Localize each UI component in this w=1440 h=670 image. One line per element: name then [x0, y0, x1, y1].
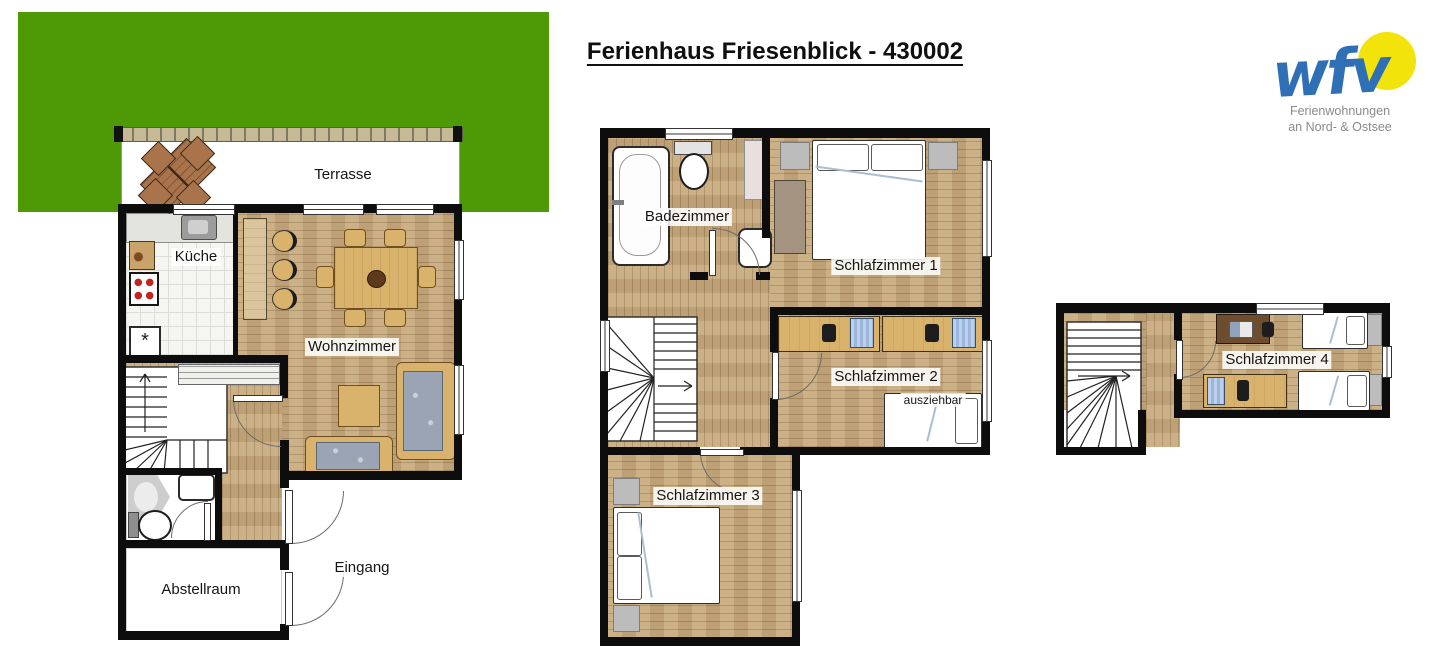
- stove: [129, 272, 159, 306]
- terrace-post-right: [453, 126, 462, 142]
- dining-chair: [344, 309, 366, 327]
- wall: [282, 471, 462, 480]
- floorplan-page: Ferienhaus Friesenblick - 430002 wfv Fer…: [0, 0, 1440, 670]
- pillow: [871, 144, 923, 171]
- window: [454, 365, 464, 435]
- wall: [690, 272, 708, 280]
- wall: [215, 468, 222, 546]
- toilet: [138, 510, 172, 541]
- wall: [118, 468, 222, 475]
- sofa-cushion: [403, 371, 443, 451]
- room-label-terrasse: Terrasse: [311, 166, 375, 184]
- bag-icon: [925, 324, 939, 342]
- laptop-icon: [1229, 321, 1253, 338]
- nightstand: [613, 478, 640, 505]
- bar-stool: [272, 259, 297, 281]
- pillow: [1346, 316, 1365, 345]
- single-bed: [1298, 371, 1370, 411]
- room-label-wohnzimmer: Wohnzimmer: [305, 338, 399, 356]
- window: [600, 320, 610, 372]
- door: [772, 352, 779, 400]
- wall: [118, 540, 288, 548]
- wall: [770, 447, 990, 455]
- pillow: [1347, 375, 1367, 407]
- wall: [1174, 313, 1182, 340]
- bag-icon: [1237, 380, 1249, 401]
- window: [376, 204, 434, 215]
- window: [173, 204, 235, 215]
- door: [709, 230, 716, 276]
- coffee-table: [338, 385, 380, 427]
- wall: [118, 355, 288, 363]
- wall: [600, 447, 700, 455]
- wall: [1056, 303, 1064, 455]
- wall: [1382, 303, 1390, 348]
- wall: [1382, 374, 1390, 418]
- entrance-door: [285, 490, 293, 544]
- toilet: [679, 153, 709, 190]
- wc-sink: [178, 474, 215, 501]
- room-label-schlafzimmer2: Schlafzimmer 2: [831, 368, 940, 386]
- blanket-fold: [1329, 316, 1339, 343]
- nightstand: [1368, 374, 1382, 406]
- wall: [1138, 410, 1146, 455]
- shirt-icon: [850, 318, 874, 348]
- window: [982, 160, 992, 257]
- sink-basin: [188, 220, 208, 234]
- bar-counter: [243, 218, 267, 320]
- wall: [118, 204, 126, 640]
- wall: [770, 307, 990, 315]
- door: [204, 503, 211, 541]
- nightstand: [780, 142, 810, 170]
- freezer-symbol: *: [141, 330, 149, 352]
- dining-table: [334, 247, 418, 309]
- room-label-badezimmer: Badezimmer: [642, 208, 732, 226]
- wall: [280, 355, 288, 398]
- room-label-kueche: Küche: [172, 248, 221, 266]
- window: [982, 340, 992, 422]
- desk-chair: [1262, 322, 1274, 337]
- window: [665, 128, 733, 140]
- coffee-machine: [129, 241, 155, 270]
- staircase: [606, 316, 698, 442]
- bathtub-basin: [619, 154, 661, 256]
- logo-acronym: wfv: [1270, 33, 1389, 112]
- annotation-ausziehbar: ausziehbar: [901, 393, 966, 407]
- nightstand: [613, 605, 640, 632]
- room-label-abstellraum: Abstellraum: [158, 581, 243, 599]
- sofa-cushion: [316, 442, 380, 470]
- logo-subtitle-line2: an Nord- & Ostsee: [1250, 120, 1430, 136]
- sideboard: [178, 364, 280, 385]
- window: [1256, 303, 1324, 315]
- dining-chair: [384, 229, 406, 247]
- wardrobe: [774, 180, 806, 254]
- bathtub: [612, 146, 670, 266]
- single-bed: [1302, 312, 1368, 349]
- wall: [280, 542, 289, 570]
- storage-door: [285, 572, 293, 626]
- staircase: [1066, 321, 1142, 449]
- shower-tray: [134, 482, 158, 512]
- shirt-icon: [1207, 377, 1225, 405]
- bathtub-faucet: [612, 200, 624, 205]
- room-label-schlafzimmer1: Schlafzimmer 1: [831, 257, 940, 275]
- window: [303, 204, 364, 215]
- dining-chair: [418, 266, 436, 288]
- sofa-large: [396, 362, 456, 460]
- blanket-fold: [926, 402, 938, 441]
- shirt-icon: [952, 318, 976, 348]
- door: [1176, 340, 1183, 380]
- freezer: *: [129, 326, 161, 358]
- room-label-eingang: Eingang: [331, 559, 392, 577]
- dining-chair: [316, 266, 334, 288]
- wall: [770, 307, 778, 352]
- wall: [792, 455, 800, 490]
- blanket-fold: [1329, 375, 1339, 405]
- bag-icon: [822, 324, 836, 342]
- door: [700, 449, 744, 456]
- window: [454, 240, 464, 300]
- nightstand: [1366, 314, 1382, 346]
- terrace-post-left: [114, 126, 123, 142]
- window: [1382, 346, 1392, 378]
- pillow: [617, 556, 642, 600]
- wall: [600, 637, 800, 646]
- wall: [1174, 410, 1390, 418]
- nightstand: [928, 142, 958, 170]
- room-label-schlafzimmer3: Schlafzimmer 3: [653, 487, 762, 505]
- wall: [600, 128, 990, 138]
- wall: [233, 204, 238, 355]
- double-bed: [613, 507, 720, 604]
- door: [233, 395, 283, 402]
- room-label-schlafzimmer4: Schlafzimmer 4: [1222, 351, 1331, 369]
- table-plant: [367, 270, 386, 288]
- wall: [280, 440, 289, 488]
- wall: [740, 447, 776, 455]
- wall: [1056, 447, 1146, 455]
- double-bed: [812, 140, 926, 260]
- bar-stool: [272, 230, 297, 252]
- bar-stool: [272, 288, 297, 310]
- window: [792, 490, 802, 602]
- wall: [118, 631, 289, 640]
- wall: [762, 128, 770, 238]
- terrace-pergola-beam: [117, 127, 463, 142]
- wall: [600, 128, 608, 646]
- dining-chair: [344, 229, 366, 247]
- kitchen-sink: [181, 215, 217, 240]
- dining-chair: [384, 309, 406, 327]
- wall: [1056, 303, 1390, 313]
- company-logo: wfv Ferienwohnungen an Nord- & Ostsee: [1250, 28, 1430, 138]
- page-title: Ferienhaus Friesenblick - 430002: [570, 38, 980, 66]
